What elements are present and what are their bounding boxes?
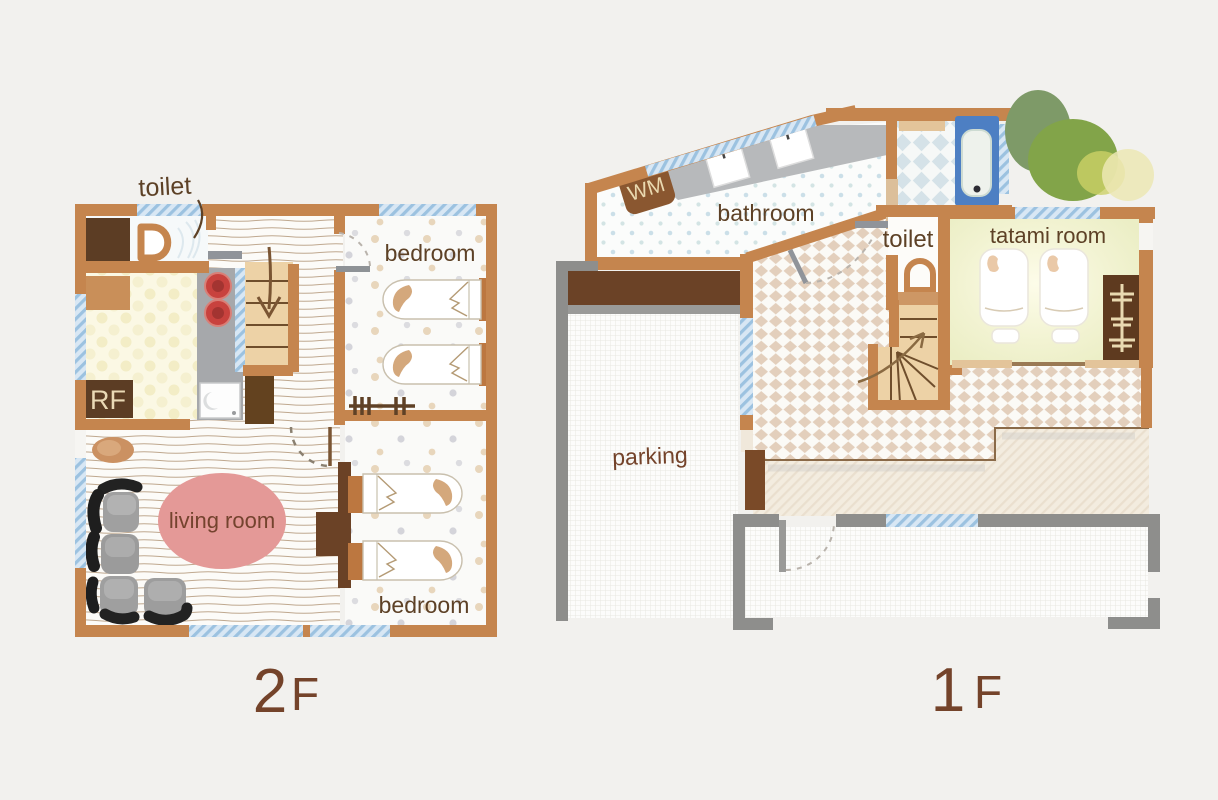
svg-text:2: 2: [253, 657, 287, 726]
svg-text:RF: RF: [90, 385, 126, 415]
svg-text:F: F: [974, 666, 1002, 718]
svg-text:living room: living room: [169, 508, 275, 533]
svg-text:tatami room: tatami room: [990, 223, 1106, 248]
svg-text:bathroom: bathroom: [717, 200, 814, 226]
svg-text:toilet: toilet: [883, 226, 934, 253]
svg-text:bedroom: bedroom: [379, 592, 470, 618]
svg-text:1: 1: [931, 656, 965, 725]
svg-text:F: F: [291, 668, 319, 720]
svg-text:bedroom: bedroom: [385, 240, 476, 266]
svg-text:parking: parking: [612, 442, 688, 471]
svg-text:toilet: toilet: [138, 172, 192, 203]
